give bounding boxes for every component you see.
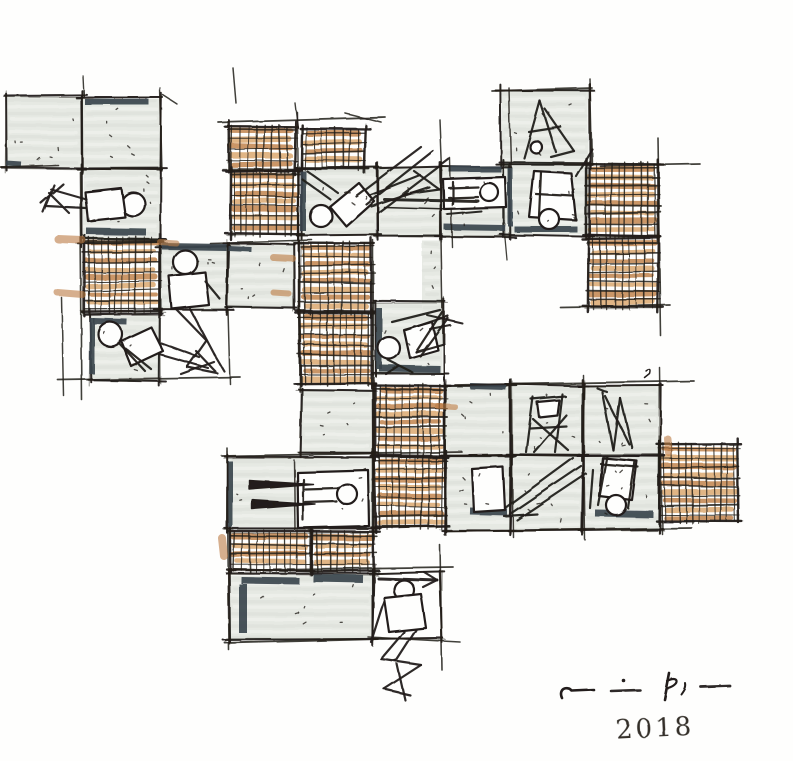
layer-signature (561, 673, 730, 699)
sketch-svg: 2018 (0, 0, 793, 761)
sketch-canvas: 2018 (0, 0, 793, 761)
sketch-layers (0, 68, 743, 700)
signature-year: 2018 (615, 712, 695, 746)
